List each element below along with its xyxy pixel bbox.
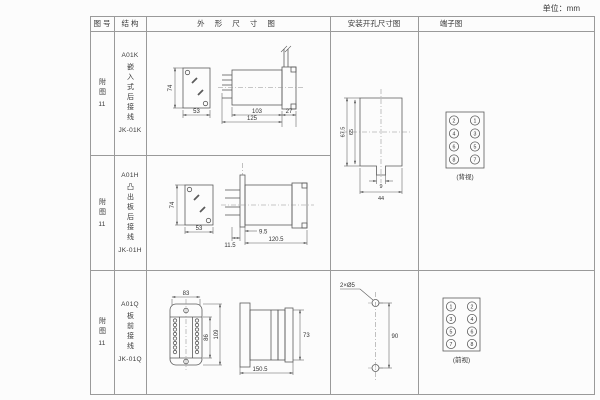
dim-total-length: 120.5 bbox=[268, 237, 284, 243]
dim-rear-length: 11.5 bbox=[224, 243, 236, 249]
terminal-number: 2 bbox=[471, 305, 474, 311]
a01h-side-view: 9.5 11.5 120.5 bbox=[221, 163, 314, 249]
dim-body-length: 103 bbox=[252, 109, 263, 115]
code-row2: JK-01H bbox=[118, 247, 141, 254]
structure-text-row2: 凸出板后接线 bbox=[127, 183, 134, 243]
dim-front-width: 53 bbox=[193, 109, 200, 115]
header-terminal: 端子图 bbox=[420, 16, 482, 31]
dim-front-width: 83 bbox=[183, 291, 190, 297]
terminal-number: 4 bbox=[471, 317, 474, 323]
terminal-circles: 1 2 3 4 5 6 7 8 bbox=[446, 302, 476, 349]
terminal-number: 7 bbox=[450, 342, 453, 348]
structure-text-row3: 板前接线 bbox=[127, 312, 134, 352]
dim-front-width: 53 bbox=[196, 226, 203, 232]
terminal-number: 8 bbox=[471, 342, 474, 348]
terminal-number: 7 bbox=[474, 158, 477, 164]
dim-notch-width: 9 bbox=[379, 184, 382, 190]
terminal-number: 1 bbox=[474, 119, 477, 125]
screw-mark-icon bbox=[200, 207, 205, 212]
header-structure: 结 构 bbox=[114, 16, 146, 31]
a01q-front-view: 83 86 109 bbox=[170, 291, 222, 370]
dim-cutout-inner-height: 65 bbox=[349, 129, 355, 135]
structure-cell-row2: A01H 凸出板后接线 JK-01H bbox=[114, 155, 146, 270]
outline-diagram-a01h: 74 53 9.5 11.5 120.5 bbox=[146, 155, 330, 270]
dim-hole-spacing: 90 bbox=[392, 334, 399, 340]
screw-mark-icon bbox=[194, 195, 199, 200]
dim-total-length: 125 bbox=[247, 116, 258, 122]
header-mounting: 安装开孔尺寸图 bbox=[330, 16, 418, 31]
view-label: (背视) bbox=[456, 172, 473, 181]
dim-front-height: 109 bbox=[214, 329, 220, 340]
fig-cell-row3: 附图 11 bbox=[90, 270, 114, 394]
fig-num-row1: 11 bbox=[98, 101, 105, 108]
terminal-diagram-q: 1 2 3 4 5 6 7 8 (前视) bbox=[418, 270, 595, 396]
a01q-side-view: 73 150.5 bbox=[240, 303, 310, 375]
fig-cell-row1: 附图 11 bbox=[90, 31, 114, 155]
dim-flange-offset: 9.5 bbox=[259, 230, 268, 236]
structure-text-row1: 嵌入式后接线 bbox=[127, 63, 134, 123]
terminal-number: 2 bbox=[453, 119, 456, 125]
mounting-diagram-kh: 67.5 65 9 44 bbox=[330, 31, 418, 270]
terminal-number: 5 bbox=[450, 330, 453, 336]
model-row3: A01Q bbox=[121, 301, 139, 308]
view-label: (前视) bbox=[453, 355, 470, 364]
terminal-number: 8 bbox=[453, 158, 456, 164]
code-row1: JK-01K bbox=[118, 127, 141, 134]
a01k-side-view: 103 27 125 bbox=[218, 46, 304, 127]
dim-front-height: 74 bbox=[168, 84, 174, 91]
terminal-number: 1 bbox=[450, 305, 453, 311]
unit-label: 单位：mm bbox=[495, 3, 580, 14]
dim-cutout-height: 67.5 bbox=[341, 127, 347, 138]
terminal-number: 3 bbox=[474, 132, 477, 138]
fig-prefix-row3: 附图 bbox=[99, 317, 106, 337]
structure-cell-row3: A01Q 板前接线 JK-01Q bbox=[114, 270, 146, 394]
dim-inner-height: 86 bbox=[204, 334, 210, 341]
dim-cutout-width: 44 bbox=[378, 196, 384, 202]
fig-num-row3: 11 bbox=[98, 340, 105, 347]
outline-diagram-a01q: 83 86 109 bbox=[146, 270, 330, 396]
fig-prefix-row1: 附图 bbox=[99, 78, 106, 98]
dim-total-length: 150.5 bbox=[252, 367, 268, 373]
structure-cell-row1: A01K 嵌入式后接线 JK-01K bbox=[114, 31, 146, 155]
dim-front-height: 74 bbox=[170, 201, 176, 208]
terminal-number: 4 bbox=[453, 132, 456, 138]
model-row1: A01K bbox=[121, 52, 138, 59]
fig-cell-row2: 附图 11 bbox=[90, 155, 114, 270]
fig-num-row2: 11 bbox=[98, 221, 105, 228]
dim-rear-length: 27 bbox=[286, 109, 293, 115]
screw-mark-icon bbox=[192, 78, 197, 83]
terminal-number: 5 bbox=[474, 145, 477, 151]
mounting-diagram-q: 2×Ø5 90 bbox=[330, 270, 418, 396]
terminal-circles: 2 1 4 3 6 5 8 7 bbox=[449, 116, 479, 164]
header-outline: 外 形 尺 寸 图 bbox=[146, 16, 330, 31]
code-row3: JK-01Q bbox=[118, 356, 142, 363]
terminal-number: 6 bbox=[471, 330, 474, 336]
model-row2: A01H bbox=[121, 172, 138, 179]
terminal-number: 6 bbox=[453, 145, 456, 151]
header-fig-no: 图 号 bbox=[90, 16, 114, 31]
fig-prefix-row2: 附图 bbox=[99, 198, 106, 218]
manual-page: { "unit_label": "单位：mm", "header": { "fi… bbox=[0, 0, 600, 400]
terminal-block-outline bbox=[443, 298, 480, 351]
a01h-front-view: 74 53 bbox=[170, 185, 213, 234]
dim-side-height: 73 bbox=[303, 333, 310, 339]
terminal-number: 3 bbox=[450, 317, 453, 323]
terminal-diagram-kh: 2 1 4 3 6 5 8 7 (背视) bbox=[418, 31, 595, 270]
hole-spec-label: 2×Ø5 bbox=[340, 283, 356, 289]
a01k-front-view: 74 53 bbox=[168, 68, 210, 118]
outline-diagram-a01k: 74 53 103 27 125 bbox=[146, 31, 330, 155]
screw-mark-icon bbox=[198, 90, 203, 95]
